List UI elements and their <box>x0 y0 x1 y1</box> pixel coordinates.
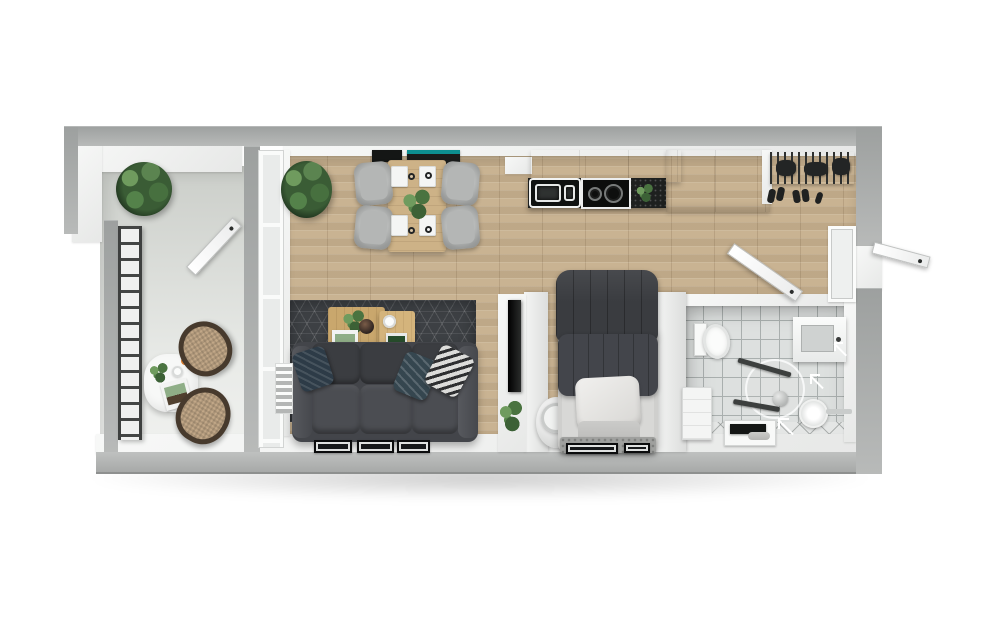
water-arrow-1 <box>778 418 794 434</box>
balcony-ladder-rack <box>118 226 142 440</box>
entry-window-frame <box>828 226 856 302</box>
kitchen-sink <box>531 180 579 206</box>
kitchen-end-panel <box>505 157 532 174</box>
hanging-coat-1 <box>776 160 796 176</box>
dining-centerpiece-plant <box>399 188 435 224</box>
kitchen-herb-plant <box>634 183 656 205</box>
bathroom-vanity <box>793 317 846 362</box>
top-wall <box>64 126 882 146</box>
dining-glass-2 <box>425 172 432 179</box>
hanging-coat-2 <box>804 162 828 176</box>
bed-duvet-upper <box>556 270 658 342</box>
shoe-4 <box>801 189 810 203</box>
balcony-corner-bush <box>116 162 172 216</box>
dining-glass-3 <box>408 227 415 234</box>
coffee-table-clock <box>383 315 396 328</box>
wall-art-frame-3 <box>397 440 430 453</box>
balcony-coffee-cup <box>172 366 183 377</box>
balcony-left-railing <box>104 220 118 454</box>
hanging-coat-3 <box>832 158 850 175</box>
living-corner-plant <box>281 161 332 218</box>
kitchen-tall-cabinets <box>666 150 770 212</box>
shoe-2 <box>776 186 786 201</box>
bathroom-washer-cabinet <box>682 387 712 440</box>
sink-basin-small <box>564 185 575 201</box>
wall-art-frame-1 <box>314 440 352 453</box>
bench-towel-light <box>748 432 770 440</box>
entry-coat-rack <box>770 152 854 184</box>
shoe-1 <box>767 188 777 203</box>
dining-glass-1 <box>408 173 415 180</box>
kitchen-cooktop <box>583 180 629 207</box>
floorplan-image <box>0 0 988 624</box>
wall-art-frame-2 <box>357 440 394 453</box>
sink-basin-large <box>535 184 561 202</box>
tv-stand-plant <box>498 398 524 438</box>
sofa-seat-cushion-1 <box>312 385 360 434</box>
shoe-5 <box>814 191 823 204</box>
bedroom-floor-tablet <box>624 443 650 453</box>
shower-arm <box>826 409 852 414</box>
coffee-table-bowl <box>359 319 374 334</box>
burner-large <box>604 184 623 203</box>
shower-head <box>799 399 828 428</box>
shower-knob <box>773 391 788 406</box>
dining-chair-ne <box>440 160 481 206</box>
bottom-wall <box>96 452 882 474</box>
dining-chair-se <box>440 204 481 250</box>
dining-chair-sw <box>353 204 394 250</box>
place-setting-nw <box>391 166 408 187</box>
burner-small <box>588 187 602 201</box>
left-corner-wall <box>64 126 78 234</box>
right-wall-upper <box>856 126 882 248</box>
water-arrow-3 <box>834 342 847 355</box>
dining-chair-nw <box>353 160 394 206</box>
right-wall-lower <box>856 288 882 474</box>
flatscreen-tv <box>508 300 521 392</box>
shoe-3 <box>792 189 801 203</box>
entry-shoes <box>766 186 824 204</box>
bedroom-floor-laptop <box>566 443 618 454</box>
living-radiator <box>275 363 293 414</box>
dining-glass-4 <box>425 226 432 233</box>
water-arrow-2 <box>810 374 824 388</box>
